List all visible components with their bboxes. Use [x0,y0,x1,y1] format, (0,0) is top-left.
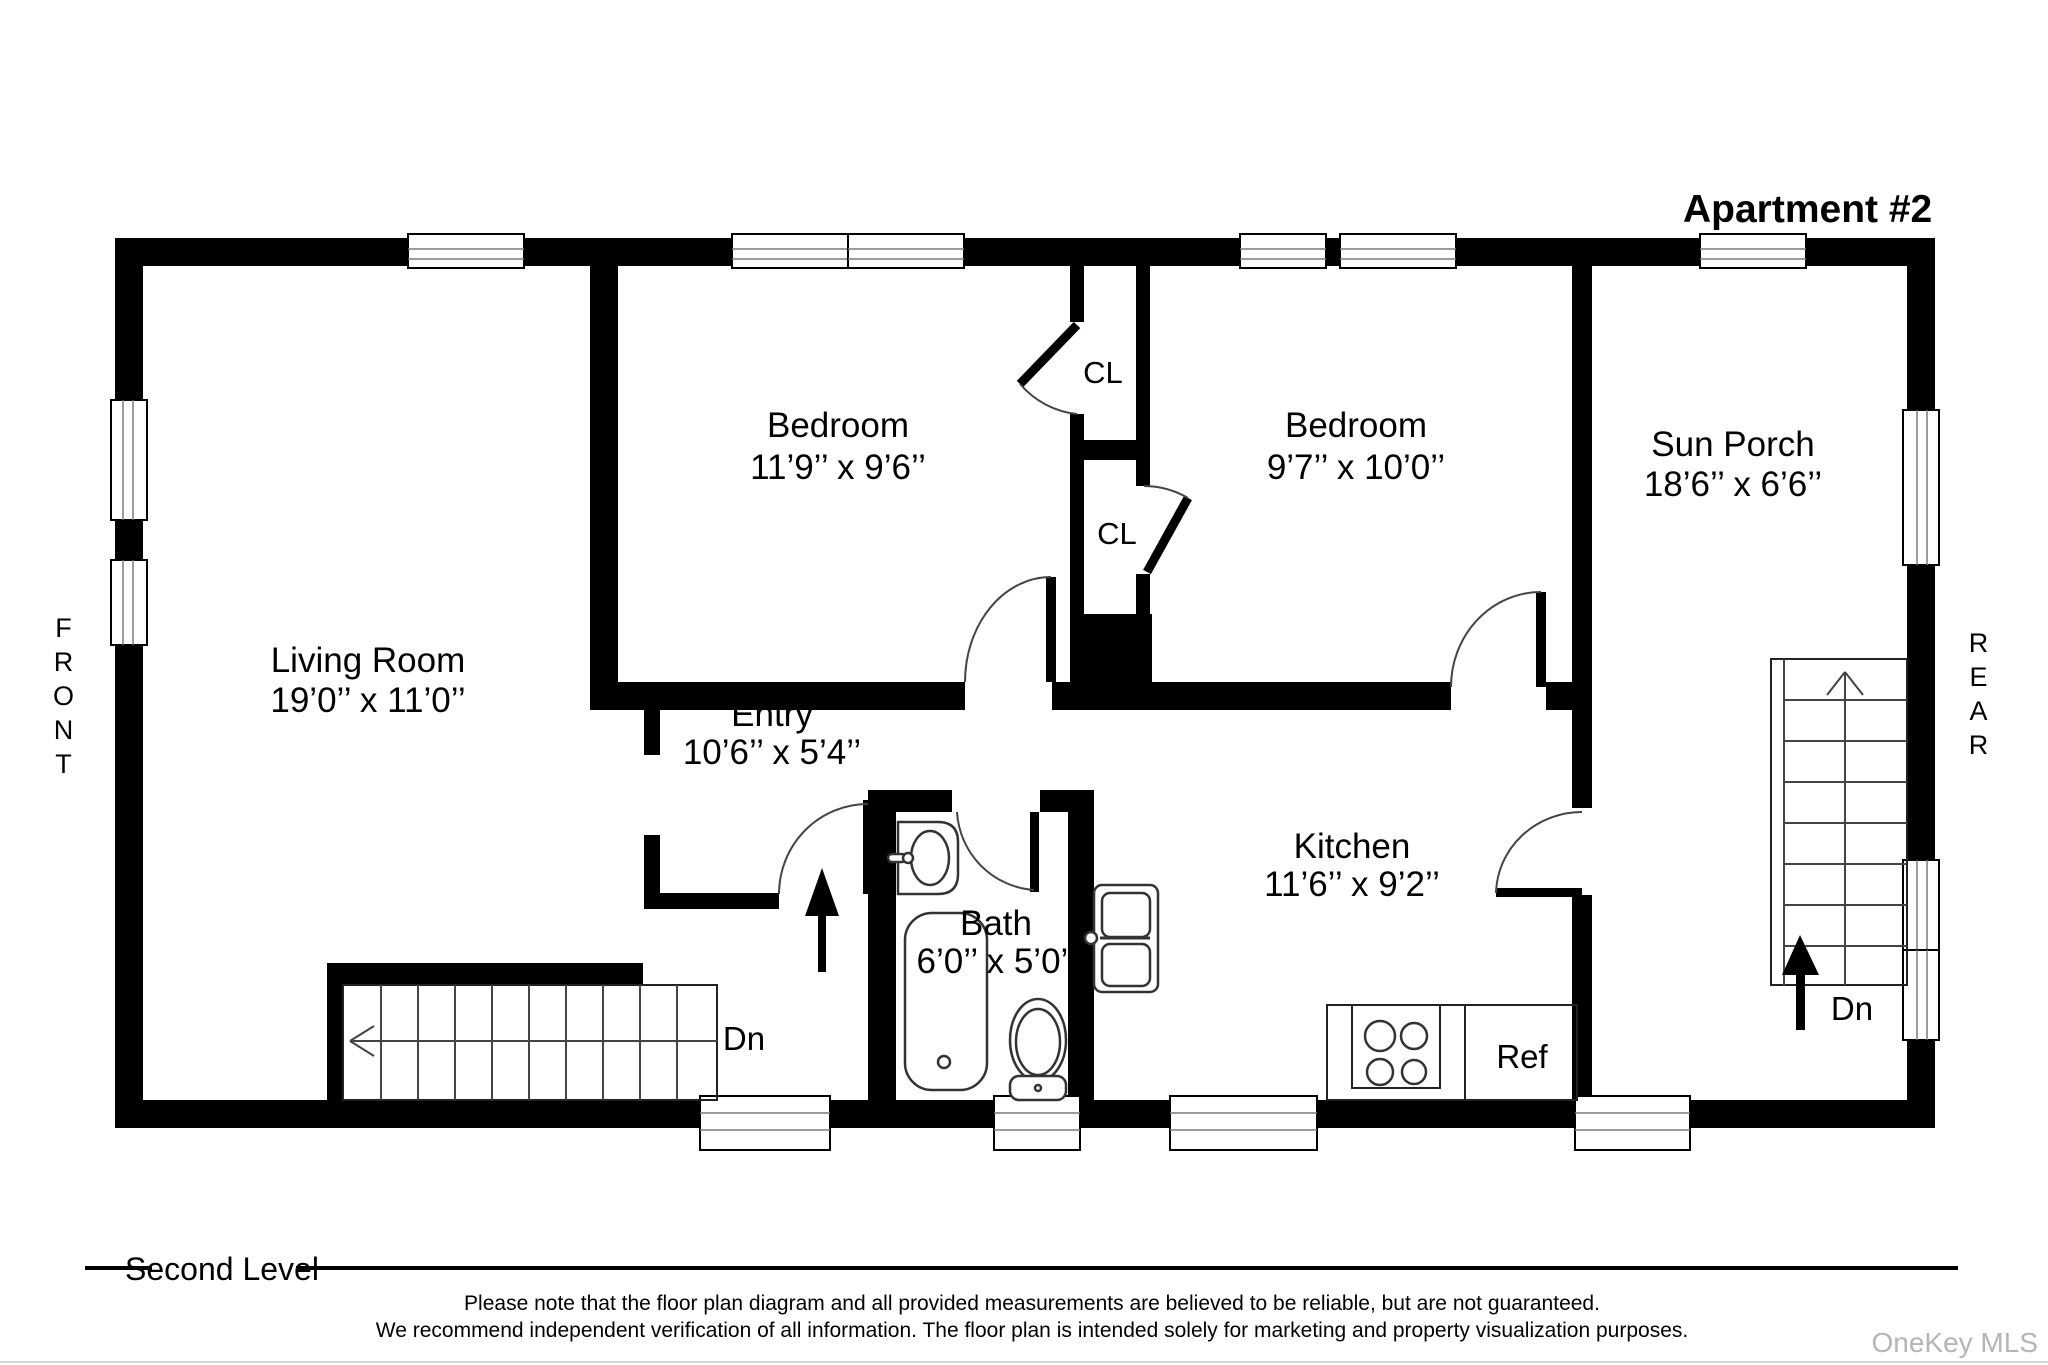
wall-livingroom-bedroom1 [590,266,618,710]
door-leaf-entry [863,800,873,894]
stairs-left-dn-label: Dn [723,1020,765,1057]
window [732,234,848,268]
door-leaf-closet1 [1020,325,1077,384]
stove [1352,1005,1440,1088]
wall-closet-divider [1070,440,1150,460]
kitchen-fixtures: Ref [1085,885,1577,1100]
window [111,560,147,645]
kitchen-sink [1085,885,1158,992]
svg-text:Kitchen: Kitchen [1294,827,1411,866]
closet2-label: CL [1097,516,1137,551]
door-arc-sunporch [1496,812,1582,893]
bathroom-sink [888,822,958,894]
door-arc-bath [957,812,1034,890]
wall-entry-south [644,893,779,909]
door-arc-closet2 [1144,486,1188,498]
window [848,234,964,268]
closet1-label: CL [1083,355,1123,390]
window [408,234,524,268]
wall-top [115,238,1935,266]
wall-closet1-left-upper [1070,266,1084,322]
wall-closet2-right-lower [1136,574,1150,614]
rear-label: REAR [1969,628,1990,760]
wall-closet-block [1070,614,1152,710]
door-leaf-sunporch [1496,888,1582,897]
door-leaf-bedroom1 [1046,577,1056,682]
front-label: FRONT [53,613,75,779]
stairs-right-bold-arrow [1782,935,1819,1030]
svg-text:Bath: Bath [960,904,1032,943]
stairs-right-arrowhead [1827,672,1845,695]
door-leaf-bedroom2 [1536,592,1546,687]
svg-text:Entry: Entry [731,695,813,734]
page-bottom-edge [0,1361,2048,1363]
room-label-living-room: Living Room 19’0’’ x 11’0’’ [270,641,465,720]
window [1903,950,1939,1040]
svg-text:10’6’’ x 5’4’’: 10’6’’ x 5’4’’ [683,733,861,772]
svg-text:18’6’’ x 6’6’’: 18’6’’ x 6’6’’ [1644,465,1822,504]
svg-text:Bedroom: Bedroom [767,406,909,445]
svg-text:Bedroom: Bedroom [1285,406,1427,445]
floor-plan-page: Apartment #2 [0,0,2048,1365]
refrigerator-label: Ref [1496,1038,1548,1075]
wall-stairs-top [327,963,643,985]
window [111,400,147,520]
wall-entry-stub-upper [644,710,660,755]
staircase-left [343,985,717,1100]
svg-text:Sun Porch: Sun Porch [1651,425,1814,464]
wall-bedroom1-bottom-jamb [1052,682,1070,710]
window [700,1096,830,1150]
door-arc-closet1 [1020,384,1077,414]
window [1903,410,1939,565]
toilet [1010,999,1066,1100]
room-label-bedroom-1: Bedroom 11’9’’ x 9’6’’ [750,406,926,487]
svg-text:19’0’’ x 11’0’’: 19’0’’ x 11’0’’ [270,681,465,720]
mls-watermark: OneKey MLS [1871,1327,2038,1358]
window [1700,234,1806,268]
level-label: Second Level [125,1251,319,1287]
room-label-kitchen: Kitchen 11’6’’ x 9’2’’ [1264,827,1440,904]
wall-sunporch-west-upper [1572,266,1592,808]
entry-up-arrow [805,868,839,972]
window [1903,860,1939,950]
door-arc-bedroom2 [1451,592,1541,687]
door-leaf-closet2 [1147,498,1188,572]
svg-text:11’9’’ x 9’6’’: 11’9’’ x 9’6’’ [750,448,926,487]
footer: Second Level Please note that the floor … [0,1251,2048,1363]
svg-text:11’6’’ x 9’2’’: 11’6’’ x 9’2’’ [1264,865,1440,904]
svg-text:9’7’’ x 10’0’’: 9’7’’ x 10’0’’ [1267,448,1445,487]
window [1240,234,1326,268]
wall-bath-north-left [868,790,952,812]
window [1340,234,1456,268]
staircase-right [1771,659,1907,1030]
window [994,1096,1080,1150]
stairs-right-arrowhead [1845,672,1863,695]
room-label-bedroom-2: Bedroom 9’7’’ x 10’0’’ [1267,406,1445,487]
wall-closet1-right [1136,266,1150,442]
window [1575,1096,1690,1150]
stairs-left-arrowhead [350,1041,374,1056]
floor-plan-drawing: Apartment #2 [0,0,2048,1365]
disclaimer-line-2: We recommend independent verification of… [376,1319,1688,1342]
door-arc-bedroom1 [965,577,1051,682]
window [1170,1096,1317,1150]
wall-sunporch-west-lower [1572,895,1592,1100]
wall-left [115,238,143,1128]
stairs-left-arrowhead [350,1026,374,1041]
stairs-right-dn-label: Dn [1831,990,1873,1027]
wall-bedroom2-bottom [1152,682,1451,710]
svg-text:6’0’’ x 5’0’’: 6’0’’ x 5’0’’ [917,942,1076,981]
disclaimer-line-1: Please note that the floor plan diagram … [464,1292,1600,1315]
wall-stairs-left [327,963,343,1100]
wall-closet2-right-upper [1136,460,1150,486]
door-leaf-bath [1030,812,1039,892]
room-label-sun-porch: Sun Porch 18’6’’ x 6’6’’ [1644,425,1822,504]
page-title: Apartment #2 [1683,188,1932,231]
svg-text:Living Room: Living Room [271,641,466,680]
